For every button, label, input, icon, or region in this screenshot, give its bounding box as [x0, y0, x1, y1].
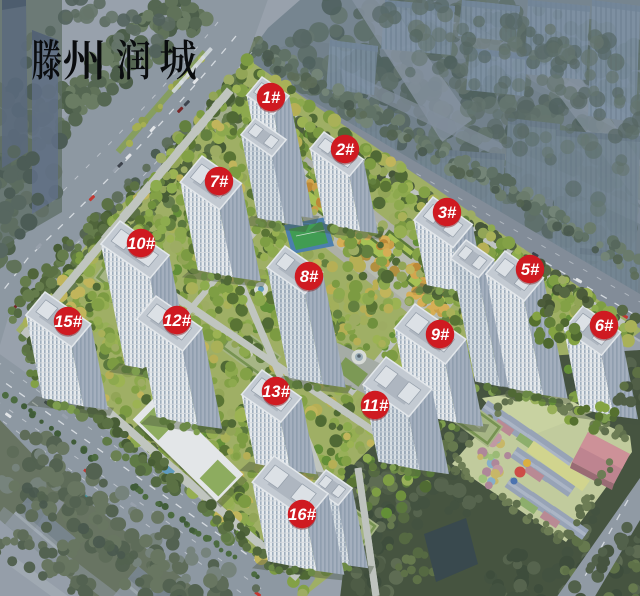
svg-text:5#: 5# — [521, 261, 540, 279]
svg-text:10#: 10# — [127, 235, 155, 253]
svg-text:12#: 12# — [163, 312, 191, 330]
svg-text:8#: 8# — [300, 268, 319, 286]
svg-text:13#: 13# — [262, 383, 290, 401]
svg-text:2#: 2# — [335, 141, 355, 159]
svg-text:3#: 3# — [438, 204, 457, 222]
svg-text:7#: 7# — [210, 173, 229, 191]
svg-text:15#: 15# — [54, 313, 82, 331]
svg-text:1#: 1# — [262, 89, 281, 107]
svg-text:11#: 11# — [362, 397, 389, 415]
svg-text:9#: 9# — [431, 326, 450, 344]
svg-text:16#: 16# — [288, 506, 316, 524]
svg-text:6#: 6# — [595, 317, 614, 335]
